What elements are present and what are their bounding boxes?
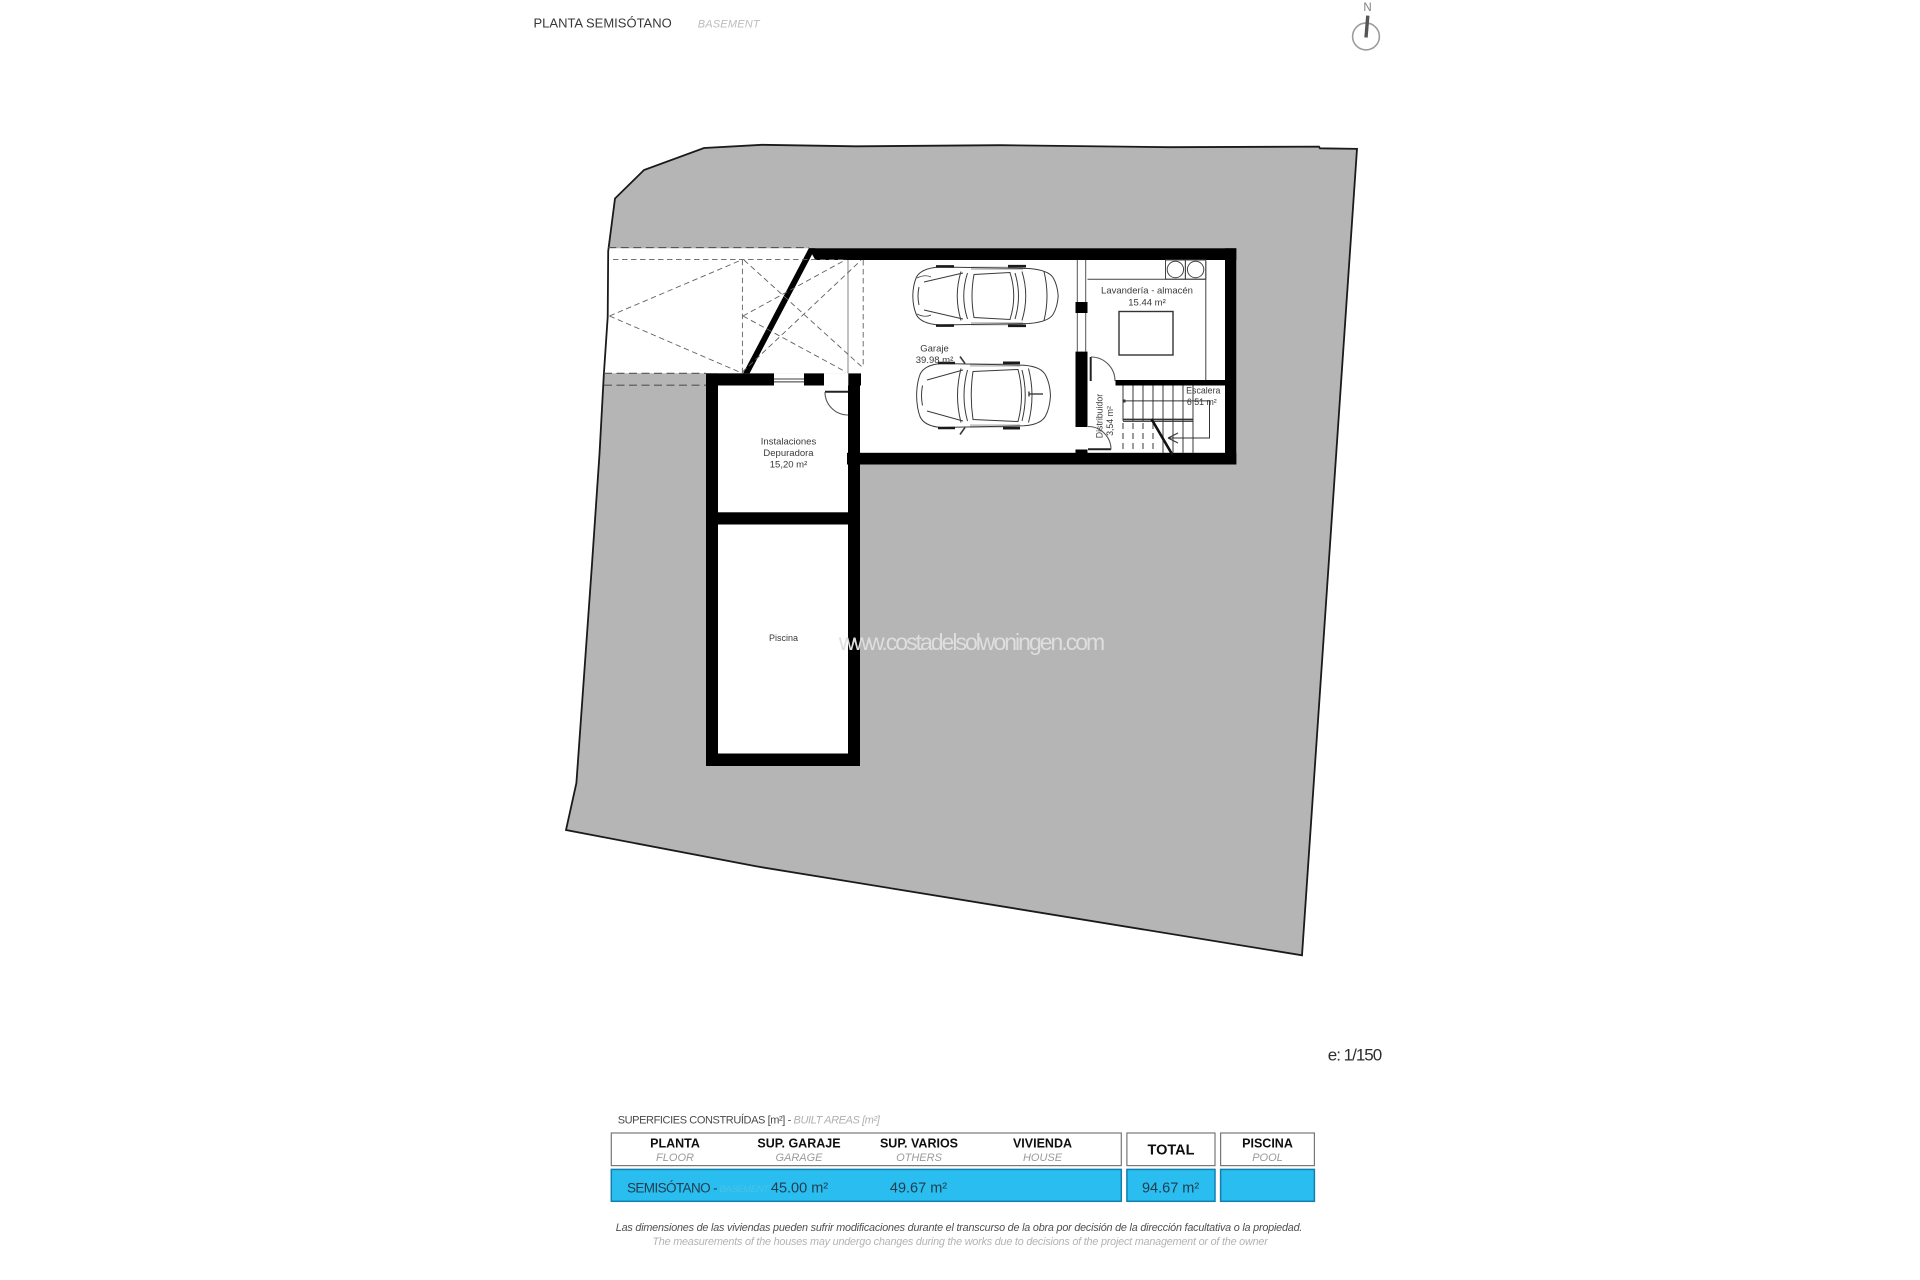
svg-text:45.00 m²: 45.00 m² [771,1181,828,1197]
svg-text:BASEMENT: BASEMENT [720,1184,771,1195]
svg-text:Depuradora: Depuradora [763,448,814,459]
svg-text:SUP. VARIOS: SUP. VARIOS [880,1137,958,1151]
svg-text:PLANTA SEMISÓTANO: PLANTA SEMISÓTANO [534,16,672,31]
svg-text:VIVIENDA: VIVIENDA [1013,1137,1072,1151]
svg-text:e: 1/150: e: 1/150 [1328,1046,1382,1065]
svg-text:Escalera: Escalera [1186,386,1220,396]
svg-text:Instalaciones: Instalaciones [761,437,817,448]
svg-text:The measurements of the houses: The measurements of the houses may under… [652,1236,1268,1248]
svg-text:N: N [1363,2,1371,14]
svg-text:PISCINA: PISCINA [1242,1137,1293,1151]
svg-text:Las dimensiones de las viviend: Las dimensiones de las viviendas pueden … [616,1222,1302,1234]
svg-text:39.98 m²: 39.98 m² [916,355,954,366]
svg-text:3,54 m²: 3,54 m² [1105,406,1115,436]
svg-text:TOTAL: TOTAL [1148,1143,1195,1159]
svg-text:SEMISÓTANO -: SEMISÓTANO - [627,1181,717,1196]
svg-text:HOUSE: HOUSE [1023,1152,1063,1164]
svg-text:OTHERS: OTHERS [896,1152,943,1164]
svg-text:FLOOR: FLOOR [656,1152,694,1164]
svg-text:49.67 m²: 49.67 m² [890,1181,947,1197]
svg-text:Lavandería - almacén: Lavandería - almacén [1101,286,1193,297]
svg-text:15,20 m²: 15,20 m² [770,460,808,471]
svg-text:BASEMENT: BASEMENT [698,19,761,31]
svg-text:Piscina: Piscina [769,633,798,643]
svg-text:15.44 m²: 15.44 m² [1128,298,1166,309]
svg-text:SUPERFICIES CONSTRUÍDAS [m²] -: SUPERFICIES CONSTRUÍDAS [m²] - BUILT ARE… [618,1114,881,1127]
svg-text:94.67 m²: 94.67 m² [1142,1181,1199,1197]
svg-text:POOL: POOL [1252,1152,1283,1164]
svg-text:Garaje: Garaje [920,344,949,355]
svg-text:GARAGE: GARAGE [775,1152,823,1164]
svg-text:SUP. GARAJE: SUP. GARAJE [757,1137,840,1151]
svg-text:www.costadelsolwoningen.com: www.costadelsolwoningen.com [838,629,1104,655]
svg-text:Distribuidor: Distribuidor [1095,394,1105,439]
svg-text:6,51 m²: 6,51 m² [1187,397,1217,407]
svg-text:PLANTA: PLANTA [650,1137,700,1151]
